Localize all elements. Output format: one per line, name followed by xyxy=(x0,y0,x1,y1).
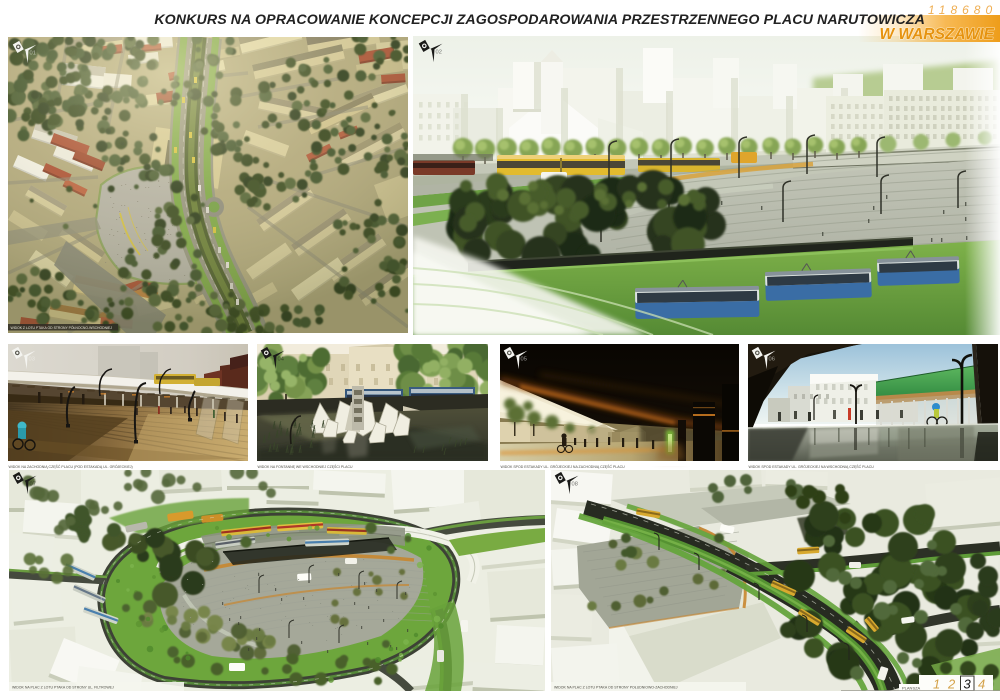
svg-text:WIDOK SPOD ESTAKADY UL. GRÓJEC: WIDOK SPOD ESTAKADY UL. GRÓJECKIEJ NA ZA… xyxy=(501,464,626,469)
svg-text:01: 01 xyxy=(30,50,36,56)
svg-text:WIDOK SPOD ESTAKADY UL. GRÓJEC: WIDOK SPOD ESTAKADY UL. GRÓJECKIEJ NA WS… xyxy=(749,464,875,469)
svg-text:07: 07 xyxy=(30,481,36,487)
svg-text:WIDOK NA FONTANNĘ WE WSCHODNIE: WIDOK NA FONTANNĘ WE WSCHODNIEJ CZĘŚCI P… xyxy=(258,464,353,469)
svg-text:4: 4 xyxy=(978,677,985,692)
svg-text:WIDOK NA ZACHODNIĄ CZĘŚĆ PLACU: WIDOK NA ZACHODNIĄ CZĘŚĆ PLACU (POD ESTA… xyxy=(9,464,133,469)
svg-text:WIDOK NA PLAC Z LOTU PTAKA OD: WIDOK NA PLAC Z LOTU PTAKA OD STRONY POŁ… xyxy=(554,686,678,690)
svg-text:2: 2 xyxy=(947,677,956,692)
svg-text:08: 08 xyxy=(572,481,578,487)
svg-text:3: 3 xyxy=(964,677,972,692)
svg-text:05: 05 xyxy=(521,356,527,362)
svg-text:WIDOK Z LOTU PTAKA OD STRONY P: WIDOK Z LOTU PTAKA OD STRONY PÓŁNOCNO-WS… xyxy=(11,325,113,330)
svg-text:WIDOK NA PLAC Z LOTU PTAKA OD: WIDOK NA PLAC Z LOTU PTAKA OD STRONY UL.… xyxy=(12,686,114,690)
svg-text:PLANSZA: PLANSZA xyxy=(902,686,921,691)
svg-text:03: 03 xyxy=(29,356,35,362)
svg-text:W WARSZAWIE: W WARSZAWIE xyxy=(879,26,994,43)
svg-text:1: 1 xyxy=(933,677,940,692)
svg-text:04: 04 xyxy=(278,356,284,362)
svg-text:06: 06 xyxy=(769,356,775,362)
svg-text:02: 02 xyxy=(436,49,442,55)
